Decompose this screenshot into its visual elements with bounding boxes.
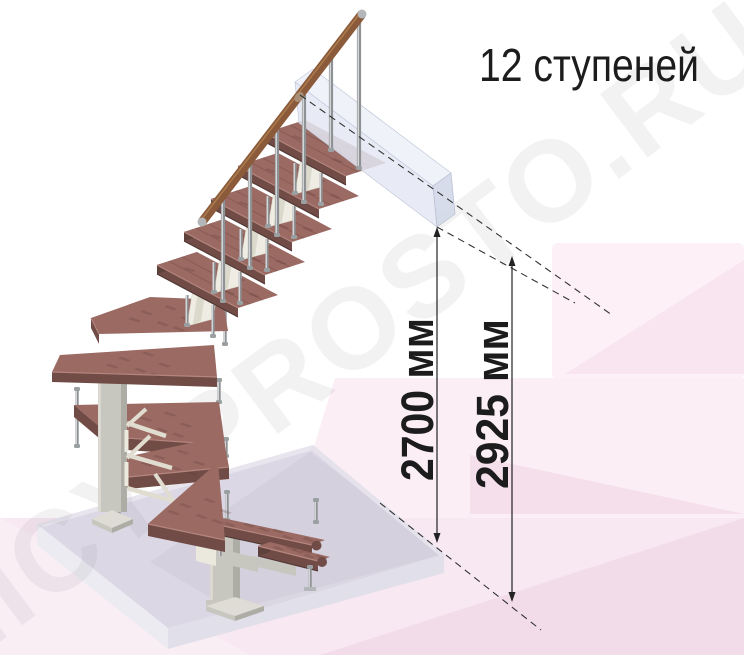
- svg-text:2700 мм: 2700 мм: [392, 318, 443, 481]
- svg-text:12 ступеней: 12 ступеней: [479, 39, 699, 91]
- svg-text:2925 мм: 2925 мм: [467, 319, 518, 489]
